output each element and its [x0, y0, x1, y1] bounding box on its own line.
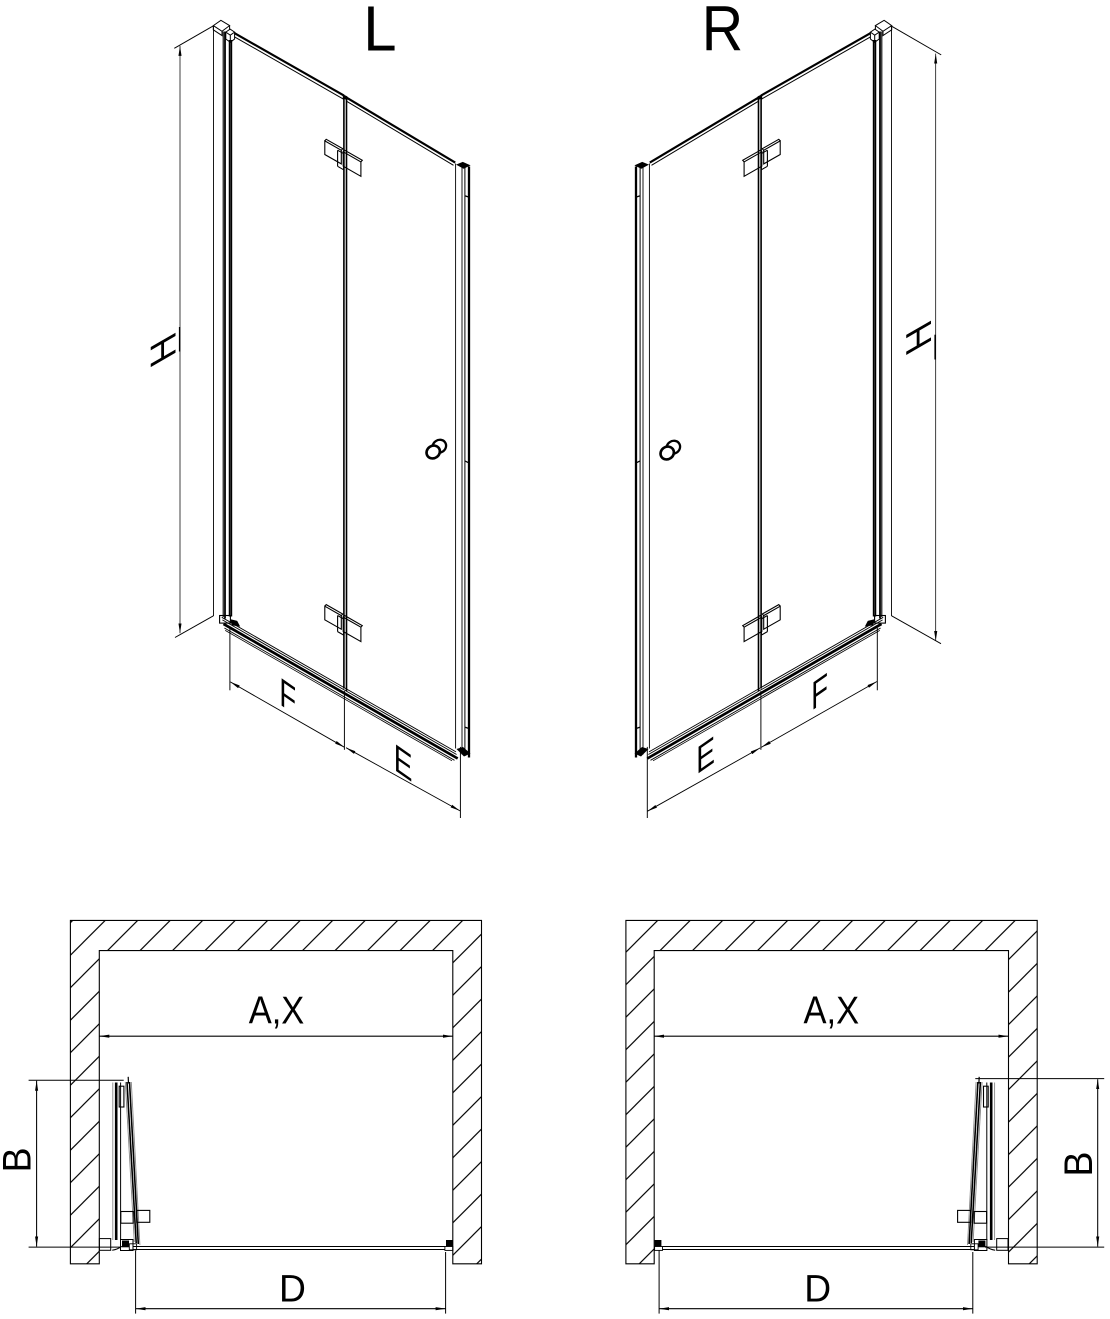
svg-text:B: B: [1057, 1152, 1101, 1177]
svg-text:A,X: A,X: [803, 988, 859, 1031]
svg-text:D: D: [804, 1267, 831, 1309]
svg-text:R: R: [702, 0, 743, 64]
svg-text:L: L: [363, 0, 396, 65]
svg-text:D: D: [279, 1267, 306, 1309]
svg-text:B: B: [0, 1147, 40, 1172]
svg-text:A,X: A,X: [249, 988, 305, 1031]
